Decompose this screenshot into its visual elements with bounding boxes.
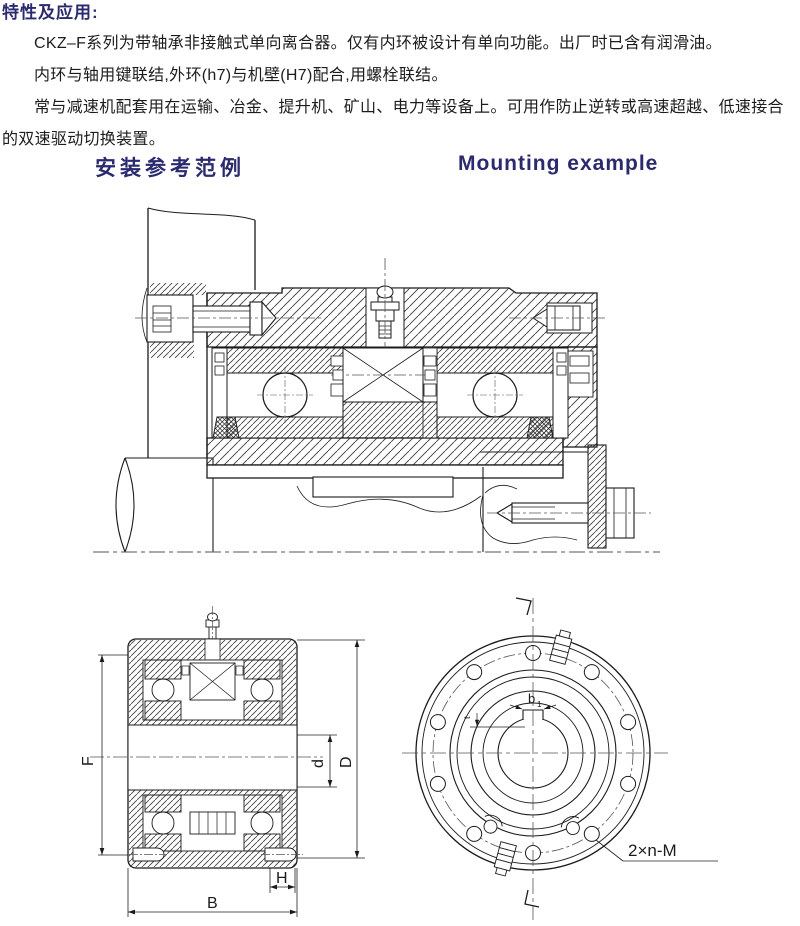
detent-right [559, 813, 585, 838]
section-mark-top [516, 598, 531, 615]
ball-bearing-right [437, 348, 568, 438]
shaft-key [297, 477, 481, 512]
keyway-width-label: b [528, 691, 535, 706]
seal-right [527, 417, 553, 438]
bearing-row-top [143, 660, 282, 720]
title-zh: 安装参考范例 [95, 152, 245, 182]
grease-fitting-radial-bottom [493, 842, 517, 877]
dim-label-F: F [80, 756, 97, 766]
intro-text-block: 特性及应用: CKZ–F系列为带轴承非接触式单向离合器。仅有内环被设计有单向功能… [2, 2, 799, 156]
detent-left [479, 812, 505, 837]
seal-left [213, 417, 239, 438]
section-mark-bottom [525, 890, 539, 907]
dim-label-B: B [207, 895, 218, 912]
intro-paragraph-2: 内环与轴用键联结,外环(h7)与机壁(H7)配合,用螺栓联结。 [2, 60, 799, 92]
ball-bearing-left [212, 348, 343, 438]
grease-fitting [366, 258, 404, 350]
dim-label-D: D [338, 756, 355, 768]
mounting-assembly-drawing [85, 190, 670, 585]
torn-edge [485, 485, 517, 493]
title-en: Mounting example [458, 152, 658, 176]
spot-face-curve [142, 288, 147, 342]
catalog-page: 特性及应用: CKZ–F系列为带轴承非接触式单向离合器。仅有内环被设计有单向功能… [0, 0, 800, 926]
bolt-note-label: 2×n-M [628, 841, 677, 860]
intro-paragraph-3: 常与减速机配套用在运输、冶金、提升机、矿山、电力等设备上。可用作防止逆转或高速超… [2, 92, 799, 156]
clutch-front-view-drawing: 2×n-M b 1 t [400, 588, 770, 926]
dim-label-d: d [310, 759, 327, 768]
sprag-element [331, 348, 437, 438]
clutch-section-drawing: F d D H B [65, 596, 400, 926]
grease-fitting-radial-top [550, 629, 574, 664]
shaft [116, 458, 213, 552]
keyway-width-sub: 1 [537, 700, 542, 709]
intro-paragraph-1: CKZ–F系列为带轴承非接触式单向离合器。仅有内环被设计有单向功能。出厂时已含有… [2, 28, 799, 60]
dim-label-H: H [276, 870, 288, 887]
features-heading: 特性及应用: [2, 2, 799, 24]
bearing-row-bottom [143, 795, 282, 851]
keyway-depth-label: t [462, 716, 472, 719]
